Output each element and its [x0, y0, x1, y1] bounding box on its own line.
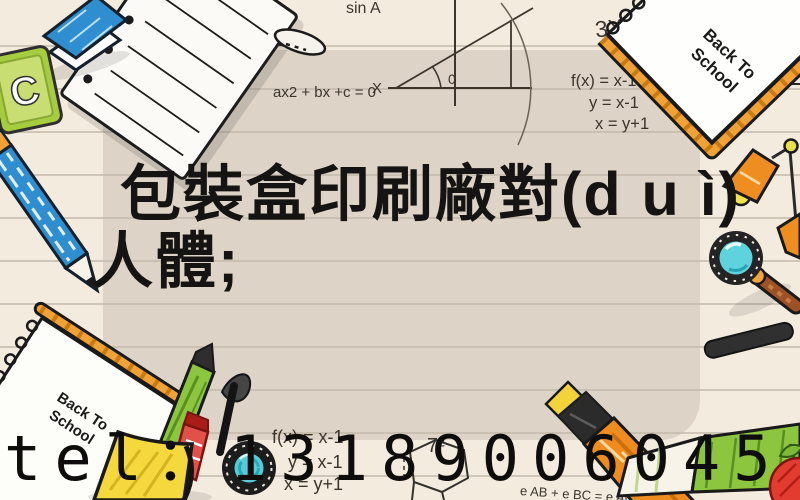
headline-line1: 包裝盒印刷廠對(d u ì) [120, 164, 741, 225]
fx-formula-2: y = x-1 [589, 94, 639, 112]
quadratic-formula: ax2 + bx +c = 0 [273, 84, 376, 101]
lamp-joint [785, 140, 798, 153]
phone-number: tel：13189006045 [4, 428, 784, 490]
sin-label: sin A [346, 0, 381, 17]
fx-formula-3: x = y+1 [595, 115, 649, 133]
angle-label: 0 [448, 71, 456, 87]
fx-formula-1: f(x) = x-1 [571, 72, 637, 90]
headline-line2: 人體; [92, 231, 240, 292]
